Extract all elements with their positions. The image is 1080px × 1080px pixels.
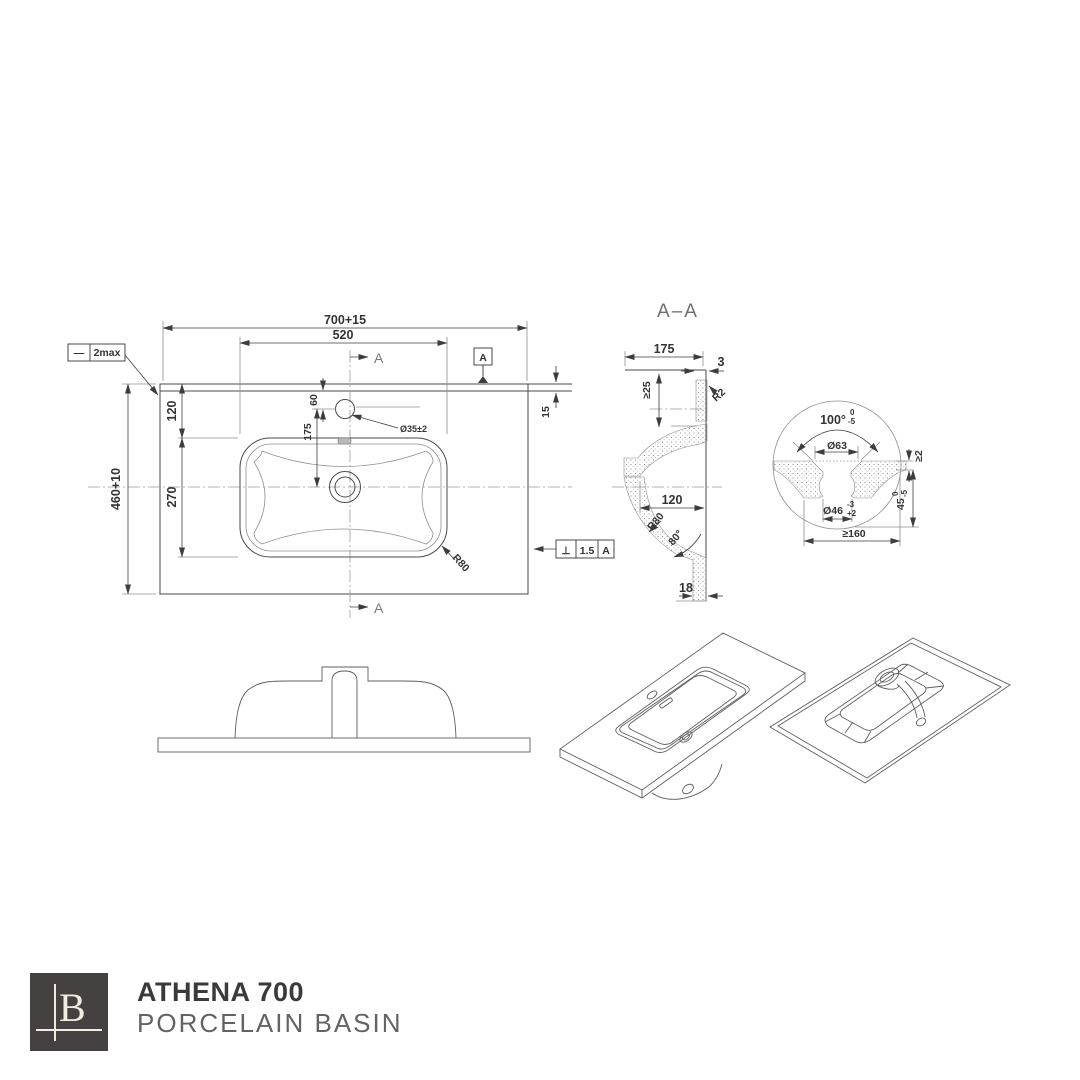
datum-triangle	[478, 376, 488, 383]
dim-tap-hole-diameter: Ø35±2	[400, 424, 427, 434]
recess-tol-upper: -3	[847, 500, 855, 509]
logo-letter: B	[59, 984, 86, 1031]
dim-rim-thickness: 3	[718, 355, 725, 369]
product-title: ATHENA 700	[137, 976, 403, 1008]
depth-tol-upper: 0	[891, 491, 900, 496]
iso2-overflow-outlet	[915, 716, 927, 727]
overflow-slot	[338, 438, 351, 444]
section-view: A–A 175 3 ≥25 R2 120 R80 80°	[612, 301, 728, 601]
section-upper-wall	[624, 424, 707, 476]
plate-outline	[160, 384, 528, 594]
section-marker-bottom: A	[374, 600, 384, 616]
logo-crosshair-vertical	[54, 984, 56, 1041]
datum-label: A	[479, 352, 487, 364]
dim-overall-width: 700+15	[324, 313, 366, 327]
section-marker-top: A	[374, 350, 384, 366]
dim-tap-to-center: 175	[302, 423, 314, 441]
section-flange-wall	[696, 380, 707, 421]
detail-view: 100° 0 -5 Ø63 ≥2 Ø46 -3 +2 45 0 -5	[773, 401, 925, 546]
footer: B ATHENA 700 PORCELAIN BASIN	[0, 960, 1080, 1080]
dim-overall-depth: 460+10	[109, 468, 123, 510]
product-subtitle: PORCELAIN BASIN	[137, 1008, 403, 1039]
elevation-bowl-underside	[235, 667, 456, 738]
datum-flag: A	[474, 348, 492, 383]
dim-top-diameter: Ø63	[827, 440, 847, 452]
iso2-overflow-channel	[897, 684, 917, 718]
dim-edge-to-basin: 120	[165, 401, 179, 422]
dim-min-depth: ≥25	[641, 381, 653, 399]
drawing-sheet: 700+15 520 460+10 120 270 60 175 15	[0, 0, 1080, 1080]
dim-rim-radius: R2	[710, 386, 728, 404]
flatness-frame: — 2max	[68, 344, 158, 395]
flatness-symbol: —	[74, 347, 85, 359]
iso2-plate-outer	[770, 638, 1010, 783]
perpendicularity-value: 1.5	[580, 545, 595, 557]
perpendicularity-datum: A	[602, 545, 610, 557]
iso-top-plate	[560, 633, 805, 790]
detail-wall-left	[774, 461, 823, 498]
bowl-bottom-outline	[254, 451, 433, 544]
dim-tap-offset: 60	[308, 394, 320, 406]
dim-min-span: ≥160	[842, 528, 865, 540]
dim-basin-width: 520	[333, 328, 354, 342]
dim-corner-radius: R80	[450, 552, 472, 574]
basin-rim-outer	[240, 438, 447, 557]
dim-cone-angle: 100°	[820, 413, 846, 427]
tap-hole	[336, 400, 355, 419]
perpendicularity-frame: ⊥ 1.5 A	[534, 540, 614, 558]
iso2-plate-inner	[778, 643, 1001, 778]
dim-recess-diameter: Ø46	[823, 505, 843, 517]
isometric-underside-view	[770, 638, 1010, 783]
dim-outlet: 18	[679, 581, 693, 595]
iso2-dome-base	[825, 664, 943, 743]
dim-back-edge: 15	[540, 406, 552, 418]
dim-recess-depth: 45	[895, 498, 907, 510]
brand-logo: B	[30, 973, 108, 1051]
elevation-plate	[158, 738, 530, 752]
flatness-value: 2max	[94, 347, 121, 359]
recess-tol-lower: +2	[847, 509, 857, 518]
elevation-drain-column	[332, 671, 357, 738]
product-titles: ATHENA 700 PORCELAIN BASIN	[137, 976, 403, 1039]
dim-section-depth: 175	[654, 342, 675, 356]
dim-bowl-width: 120	[662, 493, 683, 507]
elevation-view	[158, 667, 530, 752]
iso-drain-stub	[681, 782, 695, 795]
cone-tol-lower: -5	[848, 417, 856, 426]
cone-tol-upper: 0	[850, 408, 855, 417]
dim-basin-depth: 270	[165, 487, 179, 508]
basin-rim-inner	[246, 444, 441, 551]
perpendicularity-symbol: ⊥	[561, 545, 570, 557]
isometric-top-view	[560, 633, 805, 799]
technical-drawing: 700+15 520 460+10 120 270 60 175 15	[0, 0, 1080, 955]
section-title: A–A	[657, 301, 699, 322]
depth-tol-lower: -5	[900, 489, 909, 497]
plan-view: 700+15 520 460+10 120 270 60 175 15	[68, 313, 614, 618]
dim-min-thickness: ≥2	[913, 450, 925, 462]
